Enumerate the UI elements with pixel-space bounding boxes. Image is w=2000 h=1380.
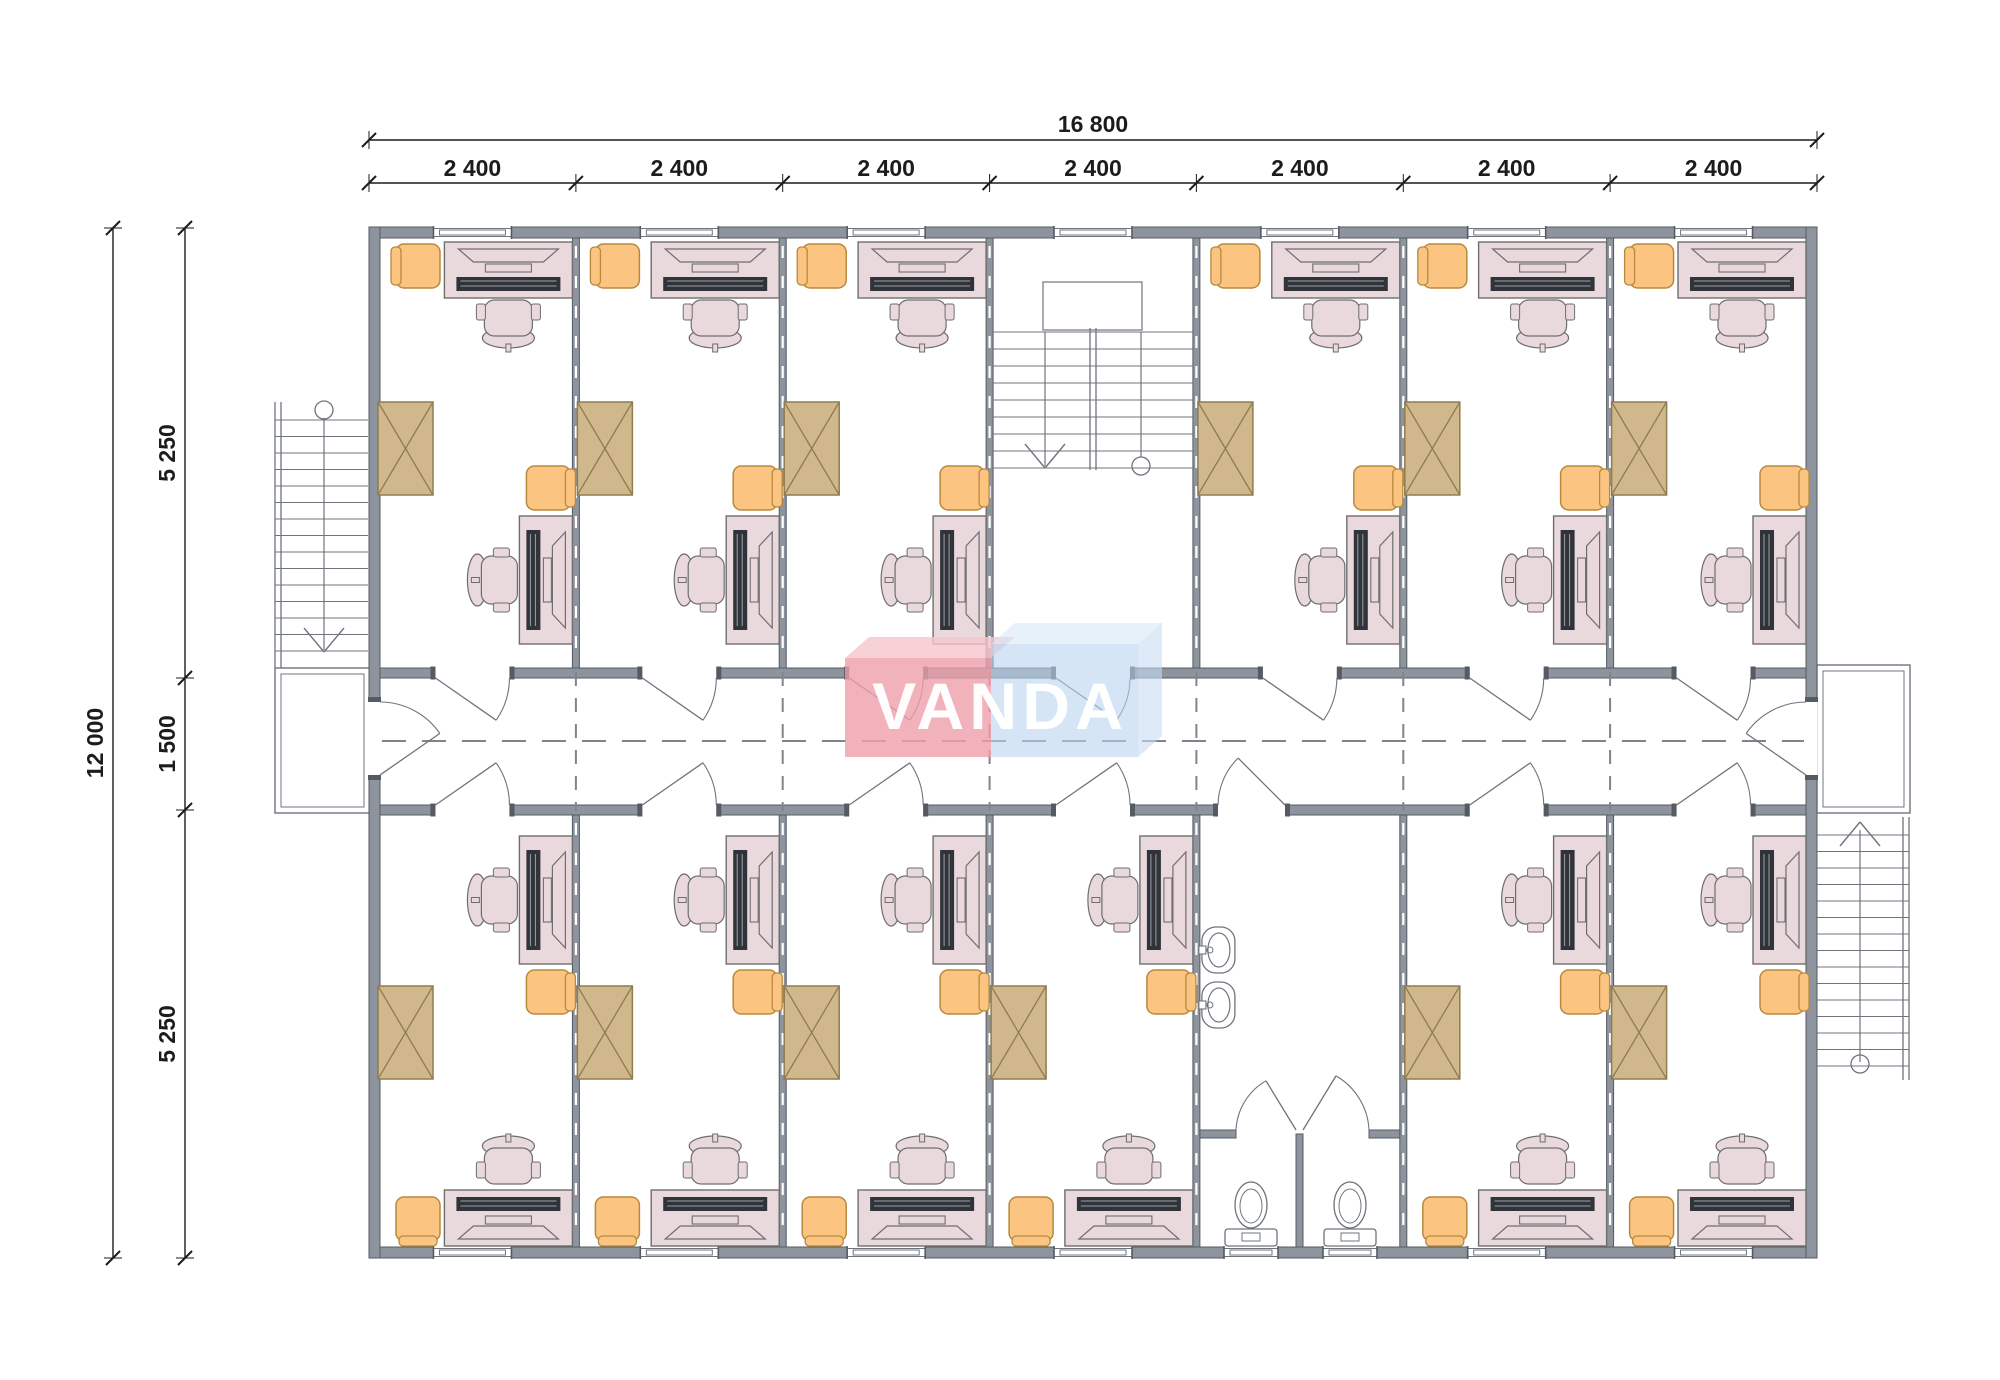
keyboard-icon (1561, 530, 1575, 630)
door-gap (1470, 667, 1544, 679)
logo-text: VANDA (872, 669, 1128, 743)
office-room-top-1 (378, 242, 575, 644)
monitor-stand (692, 1216, 738, 1224)
armchair (1561, 970, 1605, 1014)
door-leaf (1263, 678, 1324, 720)
desk-chair (1516, 876, 1552, 924)
monitor-stand (1719, 1216, 1765, 1224)
bathroom (1199, 927, 1400, 1247)
monitor-icon (1380, 532, 1393, 628)
door-swing (1336, 1076, 1369, 1130)
door-leaf (1470, 678, 1531, 720)
door-swing (1737, 678, 1750, 720)
desk-chair (1715, 556, 1751, 604)
armchair-back (797, 247, 807, 285)
chair-armrest (1727, 923, 1743, 932)
keyboard-icon (1077, 1197, 1181, 1211)
dim-label-bay-width: 2 400 (857, 155, 915, 181)
office-room-bottom-1 (378, 836, 575, 1246)
armchair-back (979, 973, 989, 1011)
dim-label-bay-width: 2 400 (1685, 155, 1743, 181)
dim-label-bay-height: 5 250 (154, 424, 180, 482)
door-gap (435, 804, 509, 816)
armchair (595, 1197, 639, 1241)
door-swing (1530, 678, 1543, 720)
desk-chair (1715, 876, 1751, 924)
monitor-icon (1286, 249, 1386, 262)
chair-armrest (1566, 1162, 1575, 1178)
door-jamb (1805, 775, 1818, 780)
door-swing (1737, 763, 1750, 805)
door-leaf (435, 678, 496, 720)
chair-armrest (890, 304, 899, 320)
chair-armrest (945, 1162, 954, 1178)
door-jamb (1258, 667, 1263, 680)
keyboard-icon (1354, 530, 1368, 630)
keyboard-icon (456, 277, 560, 291)
door-gap (1470, 804, 1544, 816)
armchair-back (598, 1236, 636, 1246)
office-room-bottom-4 (991, 836, 1196, 1246)
chair-armrest (1321, 548, 1337, 557)
chair-armrest (493, 923, 509, 932)
armchair-back (1799, 973, 1809, 1011)
chair-stem (471, 578, 479, 583)
chair-stem (885, 578, 893, 583)
monitor-stand (1520, 1216, 1566, 1224)
door-jamb (1805, 697, 1818, 702)
keyboard-icon (1690, 277, 1794, 291)
desk-chair (895, 556, 931, 604)
toilet-tank (1225, 1229, 1277, 1246)
armchair (1630, 244, 1674, 288)
monitor-icon (1493, 1226, 1593, 1239)
chair-armrest (1528, 603, 1544, 612)
armchair (733, 970, 777, 1014)
monitor-icon (1587, 532, 1600, 628)
chair-armrest (531, 1162, 540, 1178)
dim-label-bay-width: 2 400 (444, 155, 502, 181)
door-jamb (844, 804, 849, 817)
keyboard-icon (940, 530, 954, 630)
keyboard-icon (1491, 1197, 1595, 1211)
chair-stem (1705, 898, 1713, 903)
desk-chair (1718, 1148, 1766, 1184)
monitor-stand (1719, 264, 1765, 272)
door-jamb (368, 775, 381, 780)
chair-armrest (1511, 304, 1520, 320)
chair-stem (678, 578, 686, 583)
monitor-stand (1520, 264, 1566, 272)
monitor-icon (1786, 852, 1799, 948)
monitor-stand (899, 1216, 945, 1224)
monitor-icon (1173, 852, 1186, 948)
armchair (1216, 244, 1260, 288)
armchair (1760, 466, 1804, 510)
armchair (1760, 970, 1804, 1014)
door-gap (1263, 667, 1337, 679)
door-jamb (1751, 804, 1756, 817)
chair-armrest (907, 603, 923, 612)
door-jamb (637, 667, 642, 680)
chair-armrest (738, 304, 747, 320)
monitor-icon (872, 249, 972, 262)
stair-start-circle (315, 401, 333, 419)
door-jamb (1213, 804, 1218, 817)
armchair-back (1211, 247, 1221, 285)
keyboard-icon (1760, 530, 1774, 630)
keyboard-icon (663, 277, 767, 291)
chair-armrest (700, 548, 716, 557)
door-jamb (1544, 667, 1549, 680)
door-jamb (637, 804, 642, 817)
office-room-top-5 (1198, 242, 1403, 644)
dim-label-bay-height: 1 500 (154, 715, 180, 773)
keyboard-icon (733, 530, 747, 630)
door-gap (435, 667, 509, 679)
door-jamb (716, 804, 721, 817)
monitor-icon (1587, 852, 1600, 948)
door-jamb (509, 667, 514, 680)
chair-armrest (476, 304, 485, 320)
monitor-stand (485, 1216, 531, 1224)
desk-chair (481, 876, 517, 924)
monitor-stand (899, 264, 945, 272)
armchair-back (1600, 973, 1610, 1011)
monitor-stand (750, 558, 758, 602)
stair-arrow (304, 628, 324, 652)
door-leaf (1238, 758, 1285, 805)
door-jamb (430, 667, 435, 680)
monitor-stand (1777, 878, 1785, 922)
door-jamb (716, 667, 721, 680)
door-swing (496, 763, 509, 805)
chair-armrest (700, 603, 716, 612)
door-swing (1218, 758, 1238, 805)
landing (1817, 665, 1910, 813)
toilet-seat (1339, 1189, 1361, 1223)
monitor-stand (543, 558, 551, 602)
door-swing (1117, 763, 1130, 805)
dim-label-total-width: 16 800 (1058, 111, 1128, 137)
armchair (940, 970, 984, 1014)
monitor-icon (966, 532, 979, 628)
armchair-back (1426, 1236, 1464, 1246)
logo-blue-lid (991, 623, 1162, 644)
door-gap (642, 667, 716, 679)
office-room-bottom-2 (577, 836, 782, 1246)
desk-chair (688, 556, 724, 604)
door-jamb (1465, 804, 1470, 817)
armchair (526, 466, 570, 510)
chair-stem (713, 344, 718, 352)
door-jamb (1672, 667, 1677, 680)
door-swing (380, 702, 440, 733)
door-leaf (1746, 733, 1806, 775)
partition-wall (1193, 815, 1200, 1247)
door-swing (1530, 763, 1543, 805)
chair-armrest (1511, 1162, 1520, 1178)
desk-chair (1312, 300, 1360, 336)
chair-armrest (1727, 548, 1743, 557)
chair-armrest (907, 868, 923, 877)
dim-label-bay-height: 5 250 (154, 1005, 180, 1063)
chair-armrest (907, 548, 923, 557)
chair-armrest (683, 1162, 692, 1178)
keyboard-icon (1561, 850, 1575, 950)
armchair-back (979, 469, 989, 507)
door-leaf (435, 763, 496, 805)
desk-chair (898, 1148, 946, 1184)
door-leaf (642, 678, 703, 720)
monitor-stand (1164, 878, 1172, 922)
door-jamb (1751, 667, 1756, 680)
armchair (1147, 970, 1191, 1014)
door-leaf (1470, 763, 1531, 805)
partition-wall (986, 238, 993, 668)
sink-faucet (1199, 1001, 1206, 1009)
monitor-stand (1777, 558, 1785, 602)
chair-armrest (700, 923, 716, 932)
door-gap (369, 702, 381, 775)
stall-front-wall (1200, 1130, 1236, 1138)
door-swing (496, 678, 509, 720)
keyboard-icon (870, 277, 974, 291)
chair-stem (506, 1134, 511, 1142)
door-jamb (923, 804, 928, 817)
keyboard-icon (1147, 850, 1161, 950)
desk-chair (1718, 300, 1766, 336)
keyboard-icon (870, 1197, 974, 1211)
door-leaf (1677, 678, 1738, 720)
armchair-back (772, 973, 782, 1011)
armchair-back (805, 1236, 843, 1246)
chair-armrest (1359, 304, 1368, 320)
chair-armrest (1114, 868, 1130, 877)
monitor-stand (543, 878, 551, 922)
monitor-stand (1313, 264, 1359, 272)
stair-hall (993, 282, 1193, 475)
door-jamb (430, 804, 435, 817)
chair-armrest (1566, 304, 1575, 320)
chair-armrest (476, 1162, 485, 1178)
monitor-stand (1578, 878, 1586, 922)
desk-chair (895, 876, 931, 924)
door-swing (1236, 1081, 1266, 1130)
chair-armrest (1765, 304, 1774, 320)
chair-armrest (1727, 868, 1743, 877)
chair-armrest (1114, 923, 1130, 932)
chair-armrest (890, 1162, 899, 1178)
chair-armrest (1710, 304, 1719, 320)
floor-plan: 16 8002 4002 4002 4002 4002 4002 4002 40… (0, 0, 2000, 1380)
door-gap (1806, 702, 1818, 775)
door-gap (1218, 804, 1285, 816)
chair-armrest (1765, 1162, 1774, 1178)
office-room-top-3 (784, 242, 989, 644)
keyboard-icon (733, 850, 747, 950)
chair-armrest (531, 304, 540, 320)
office-room-top-2 (577, 242, 782, 644)
chair-stem (506, 344, 511, 352)
door-jamb (1051, 804, 1056, 817)
armchair (802, 1197, 846, 1241)
chair-armrest (493, 868, 509, 877)
keyboard-icon (456, 1197, 560, 1211)
chair-armrest (907, 923, 923, 932)
stair-arrow (1860, 822, 1880, 846)
door-jamb (1285, 804, 1290, 817)
chair-stem (885, 898, 893, 903)
chair-stem (471, 898, 479, 903)
chair-stem (1740, 1134, 1745, 1142)
door-jamb (1465, 667, 1470, 680)
monitor-icon (1079, 1226, 1179, 1239)
armchair (526, 970, 570, 1014)
chair-stem (920, 344, 925, 352)
door-jamb (509, 804, 514, 817)
armchair-back (565, 973, 575, 1011)
monitor-stand (1578, 558, 1586, 602)
monitor-icon (1493, 249, 1593, 262)
chair-armrest (738, 1162, 747, 1178)
monitor-icon (665, 1226, 765, 1239)
keyboard-icon (526, 530, 540, 630)
chair-stem (1126, 1134, 1131, 1142)
armchair-back (399, 1236, 437, 1246)
door-leaf (1266, 1081, 1296, 1130)
door-swing (703, 763, 716, 805)
office-room-bottom-3 (784, 836, 989, 1246)
door-gap (1677, 667, 1751, 679)
stair-arrow (324, 628, 344, 652)
desk-chair (1102, 876, 1138, 924)
chair-stem (1540, 344, 1545, 352)
keyboard-icon (1690, 1197, 1794, 1211)
chair-armrest (1528, 868, 1544, 877)
stair-arrow (1840, 822, 1860, 846)
chair-stem (1506, 898, 1514, 903)
stair-arrow (1045, 444, 1065, 468)
monitor-stand (1106, 1216, 1152, 1224)
armchair-back (1600, 469, 1610, 507)
keyboard-icon (1284, 277, 1388, 291)
door-swing (910, 763, 923, 805)
chair-stem (1506, 578, 1514, 583)
armchair-back (1625, 247, 1635, 285)
monitor-icon (552, 852, 565, 948)
office-room-top-7 (1612, 242, 1809, 644)
dim-label-total-height: 12 000 (82, 708, 108, 778)
logo-pink-lid (845, 637, 1015, 658)
monitor-stand (692, 264, 738, 272)
desk-chair (481, 556, 517, 604)
door-gap (849, 804, 923, 816)
monitor-icon (1786, 532, 1799, 628)
dim-label-bay-width: 2 400 (651, 155, 709, 181)
keyboard-icon (1760, 850, 1774, 950)
monitor-icon (458, 1226, 558, 1239)
chair-armrest (1528, 923, 1544, 932)
armchair (396, 244, 440, 288)
door-leaf (849, 763, 910, 805)
armchair (1423, 244, 1467, 288)
armchair-back (1186, 973, 1196, 1011)
desk-chair (898, 300, 946, 336)
desk-chair (484, 1148, 532, 1184)
stair-landing-outline (1043, 282, 1142, 330)
toilet-seat (1240, 1189, 1262, 1223)
stair-arrow (1025, 444, 1045, 468)
door-gap (642, 804, 716, 816)
armchair-back (1012, 1236, 1050, 1246)
chair-armrest (1727, 603, 1743, 612)
floor-plan-canvas: 16 8002 4002 4002 4002 4002 4002 4002 40… (0, 0, 2000, 1380)
vanda-logo: VANDA (845, 623, 1162, 757)
door-leaf (1056, 763, 1117, 805)
chair-stem (1299, 578, 1307, 583)
door-gap (1677, 804, 1751, 816)
desk-chair (1519, 1148, 1567, 1184)
armchair (940, 466, 984, 510)
office-room-bottom-7 (1612, 836, 1809, 1246)
monitor-icon (665, 249, 765, 262)
chair-stem (678, 898, 686, 903)
desk-chair (1105, 1148, 1153, 1184)
monitor-stand (957, 878, 965, 922)
chair-armrest (700, 868, 716, 877)
armchair-back (1799, 469, 1809, 507)
dim-label-bay-width: 2 400 (1064, 155, 1122, 181)
desk-chair (691, 1148, 739, 1184)
armchair-back (590, 247, 600, 285)
keyboard-icon (940, 850, 954, 950)
chair-armrest (493, 603, 509, 612)
door-jamb (1130, 804, 1135, 817)
sink-faucet (1199, 946, 1206, 954)
door-swing (1746, 702, 1806, 733)
landing (275, 668, 370, 813)
armchair (595, 244, 639, 288)
monitor-icon (966, 852, 979, 948)
chair-armrest (1710, 1162, 1719, 1178)
monitor-icon (1692, 249, 1792, 262)
stall-front-wall (1369, 1130, 1400, 1138)
armchair (1009, 1197, 1053, 1241)
desk-chair (484, 300, 532, 336)
armchair (396, 1197, 440, 1241)
keyboard-icon (1491, 277, 1595, 291)
keyboard-icon (526, 850, 540, 950)
desk-chair (688, 876, 724, 924)
desk-chair (1516, 556, 1552, 604)
chair-stem (1705, 578, 1713, 583)
door-leaf (1303, 1076, 1336, 1130)
door-swing (703, 678, 716, 720)
chair-stem (1333, 344, 1338, 352)
chair-armrest (1152, 1162, 1161, 1178)
keyboard-icon (663, 1197, 767, 1211)
monitor-stand (957, 558, 965, 602)
monitor-stand (485, 264, 531, 272)
chair-armrest (945, 304, 954, 320)
armchair-back (1633, 1236, 1671, 1246)
armchair (1630, 1197, 1674, 1241)
office-room-bottom-6 (1405, 836, 1610, 1246)
chair-stem (1740, 344, 1745, 352)
door-jamb (1672, 804, 1677, 817)
chair-armrest (1528, 548, 1544, 557)
